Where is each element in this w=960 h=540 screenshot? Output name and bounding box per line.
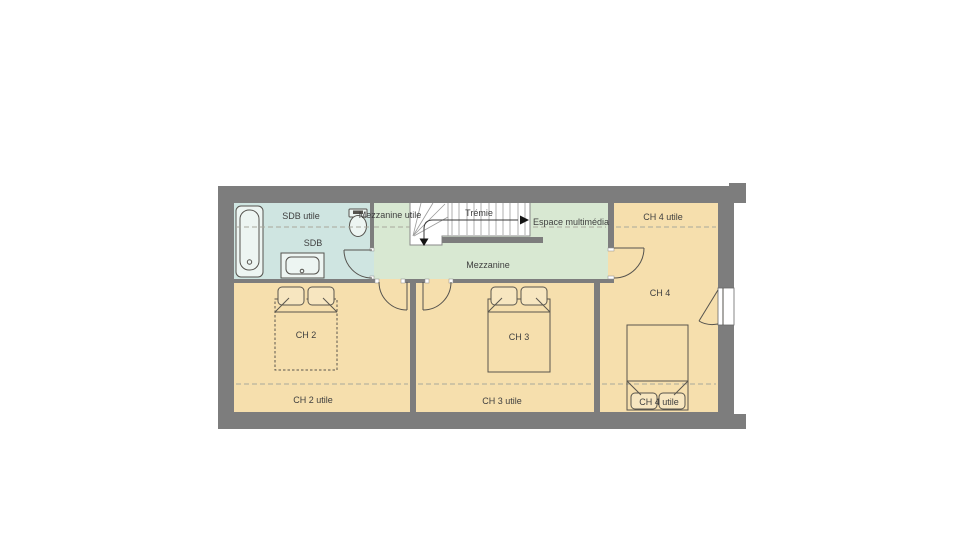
wall-bottom (218, 412, 734, 429)
label-ch4-utile-haut: CH 4 utile (643, 212, 683, 222)
wall-protrusion-top-right (729, 183, 746, 203)
label-ch3-utile: CH 3 utile (482, 396, 522, 406)
wall-left (218, 186, 234, 429)
wall-top (218, 186, 734, 203)
label-ch3: CH 3 (509, 332, 530, 342)
label-mezzanine-utile: Mezzanine utile (359, 210, 422, 220)
window-frame (718, 288, 734, 325)
label-mezzanine: Mezzanine (466, 260, 510, 270)
washbasin-icon (281, 253, 324, 278)
ch3-door-threshold (429, 279, 449, 283)
wall-ch2-ch3 (410, 283, 416, 412)
wall-mezzanine-ch3 (453, 279, 614, 283)
floorplan-svg: SDB utile SDB Mezzanine utile Trémie Esp… (0, 0, 960, 540)
bathtub-icon (236, 206, 263, 277)
label-ch4: CH 4 (650, 288, 671, 298)
wall-ch3-ch4 (594, 283, 600, 412)
label-sdb: SDB (304, 238, 323, 248)
label-ch2: CH 2 (296, 330, 317, 340)
floorplan-canvas: SDB utile SDB Mezzanine utile Trémie Esp… (0, 0, 960, 540)
label-tremie: Trémie (465, 208, 493, 218)
wall-stair-guard (442, 237, 543, 243)
label-sdb-utile: SDB utile (282, 211, 320, 221)
ch2-door-threshold (379, 279, 401, 283)
label-ch4-utile-bas: CH 4 utile (639, 397, 679, 407)
ch4-door-threshold (608, 251, 614, 276)
wall-bathroom-ch2 (234, 279, 376, 283)
wall-protrusion-bottom-right (733, 414, 746, 429)
wall-door-post (405, 279, 425, 283)
bathroom-door-threshold (370, 251, 374, 276)
label-espace-multimedia: Espace multimédia (533, 217, 609, 227)
label-ch2-utile: CH 2 utile (293, 395, 333, 405)
